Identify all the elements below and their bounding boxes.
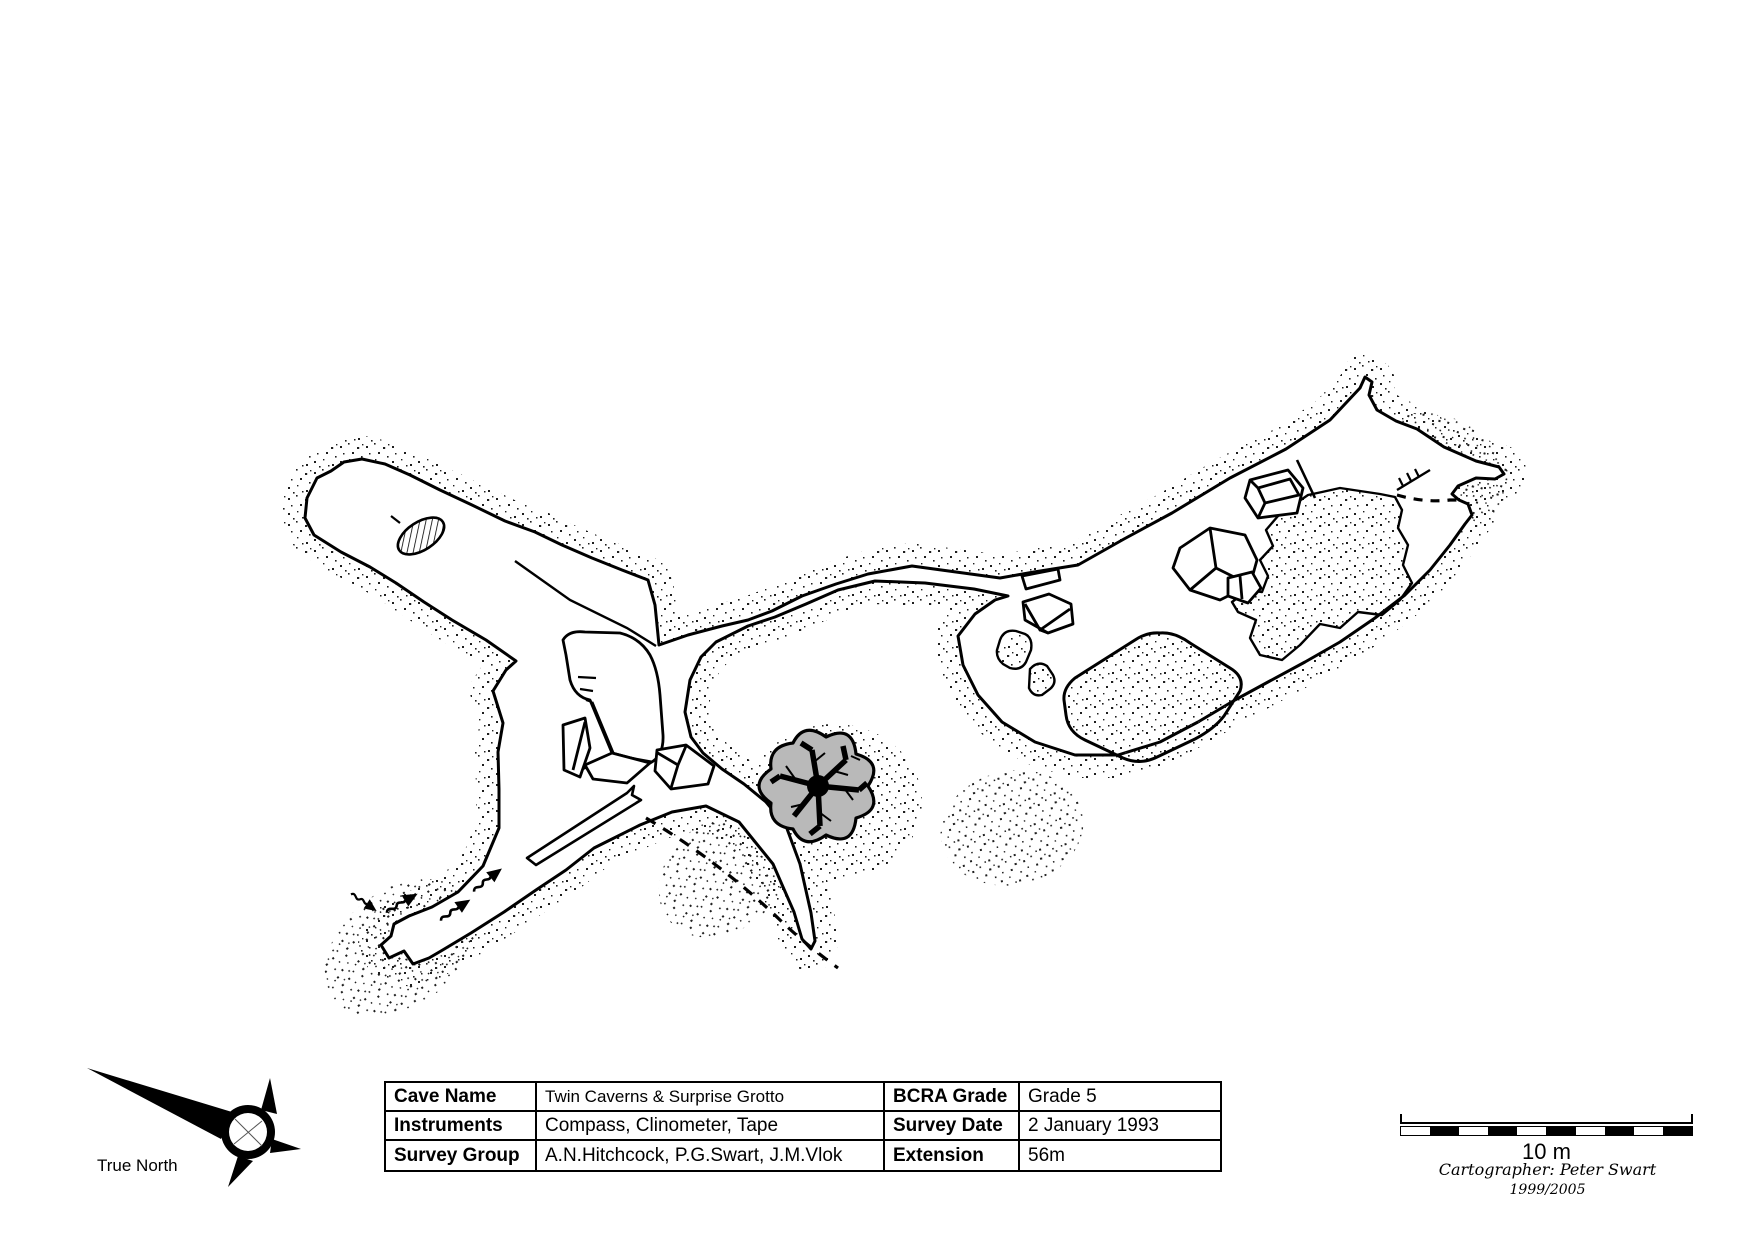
cartographer-credit: Cartographer: Peter Swart bbox=[1355, 1160, 1740, 1179]
instruments-label: Instruments bbox=[386, 1112, 537, 1141]
scale-bar-segments bbox=[1400, 1126, 1693, 1136]
survey-date-value: 2 January 1993 bbox=[1020, 1112, 1220, 1141]
scale-segment bbox=[1546, 1127, 1575, 1135]
instruments-value: Compass, Clinometer, Tape bbox=[537, 1112, 885, 1141]
extension-label: Extension bbox=[885, 1141, 1020, 1170]
cave-name-value: Twin Caverns & Surprise Grotto bbox=[537, 1083, 885, 1112]
scale-segment bbox=[1430, 1127, 1459, 1135]
scale-segment bbox=[1459, 1127, 1488, 1135]
scale-segment bbox=[1605, 1127, 1634, 1135]
cave-survey-page: Cave Name Twin Caverns & Surprise Grotto… bbox=[0, 0, 1755, 1242]
survey-group-label: Survey Group bbox=[386, 1141, 537, 1170]
credits: Cartographer: Peter Swart 1999/2005 bbox=[1355, 1160, 1740, 1198]
credit-years: 1999/2005 bbox=[1355, 1182, 1740, 1198]
scale-segment bbox=[1663, 1127, 1692, 1135]
scale-segment bbox=[1401, 1127, 1430, 1135]
bcra-grade-label: BCRA Grade bbox=[885, 1083, 1020, 1112]
extension-value: 56m bbox=[1020, 1141, 1220, 1170]
bcra-grade-value: Grade 5 bbox=[1020, 1083, 1220, 1112]
true-north-label: True North bbox=[97, 1156, 178, 1176]
survey-group-value: A.N.Hitchcock, P.G.Swart, J.M.Vlok bbox=[537, 1141, 885, 1170]
survey-data-table: Cave Name Twin Caverns & Surprise Grotto… bbox=[384, 1081, 1222, 1172]
scale-segment bbox=[1517, 1127, 1546, 1135]
cave-map bbox=[0, 0, 1755, 1242]
survey-date-label: Survey Date bbox=[885, 1112, 1020, 1141]
tree-trunk-dot bbox=[807, 775, 829, 797]
scale-top-line bbox=[1400, 1122, 1693, 1124]
cave-name-label: Cave Name bbox=[386, 1083, 537, 1112]
scale-segment bbox=[1576, 1127, 1605, 1135]
sand-blob-1 bbox=[997, 631, 1032, 669]
scale-segment bbox=[1488, 1127, 1517, 1135]
scale-segment bbox=[1634, 1127, 1663, 1135]
